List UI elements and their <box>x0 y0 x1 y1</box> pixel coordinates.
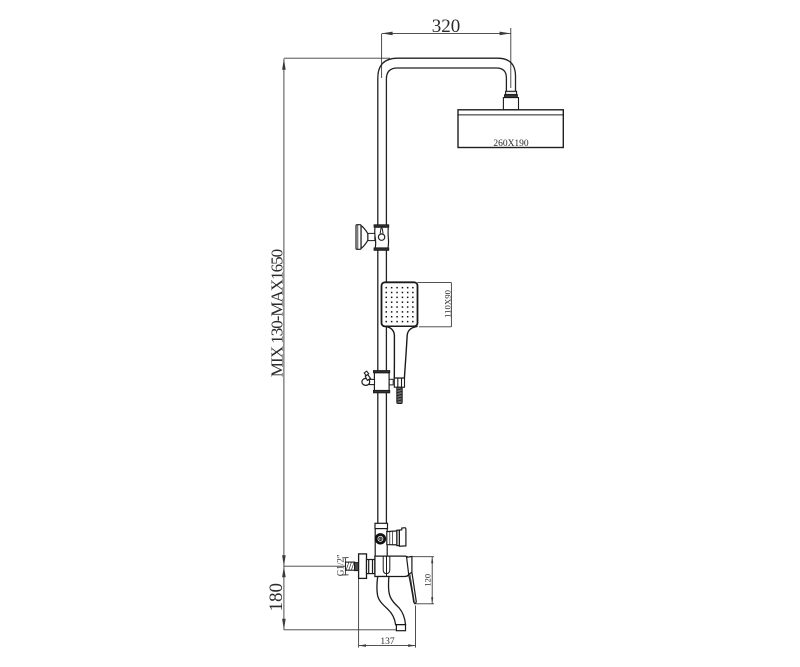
svg-text:MIX 130-MAX1650: MIX 130-MAX1650 <box>267 249 286 377</box>
svg-text:320: 320 <box>432 16 461 37</box>
svg-text:180: 180 <box>266 583 287 612</box>
svg-text:120: 120 <box>422 574 432 587</box>
svg-text:G1/2″: G1/2″ <box>336 554 346 576</box>
svg-text:137: 137 <box>380 637 395 647</box>
svg-text:260X190: 260X190 <box>493 139 529 149</box>
svg-text:110X90: 110X90 <box>443 289 453 318</box>
